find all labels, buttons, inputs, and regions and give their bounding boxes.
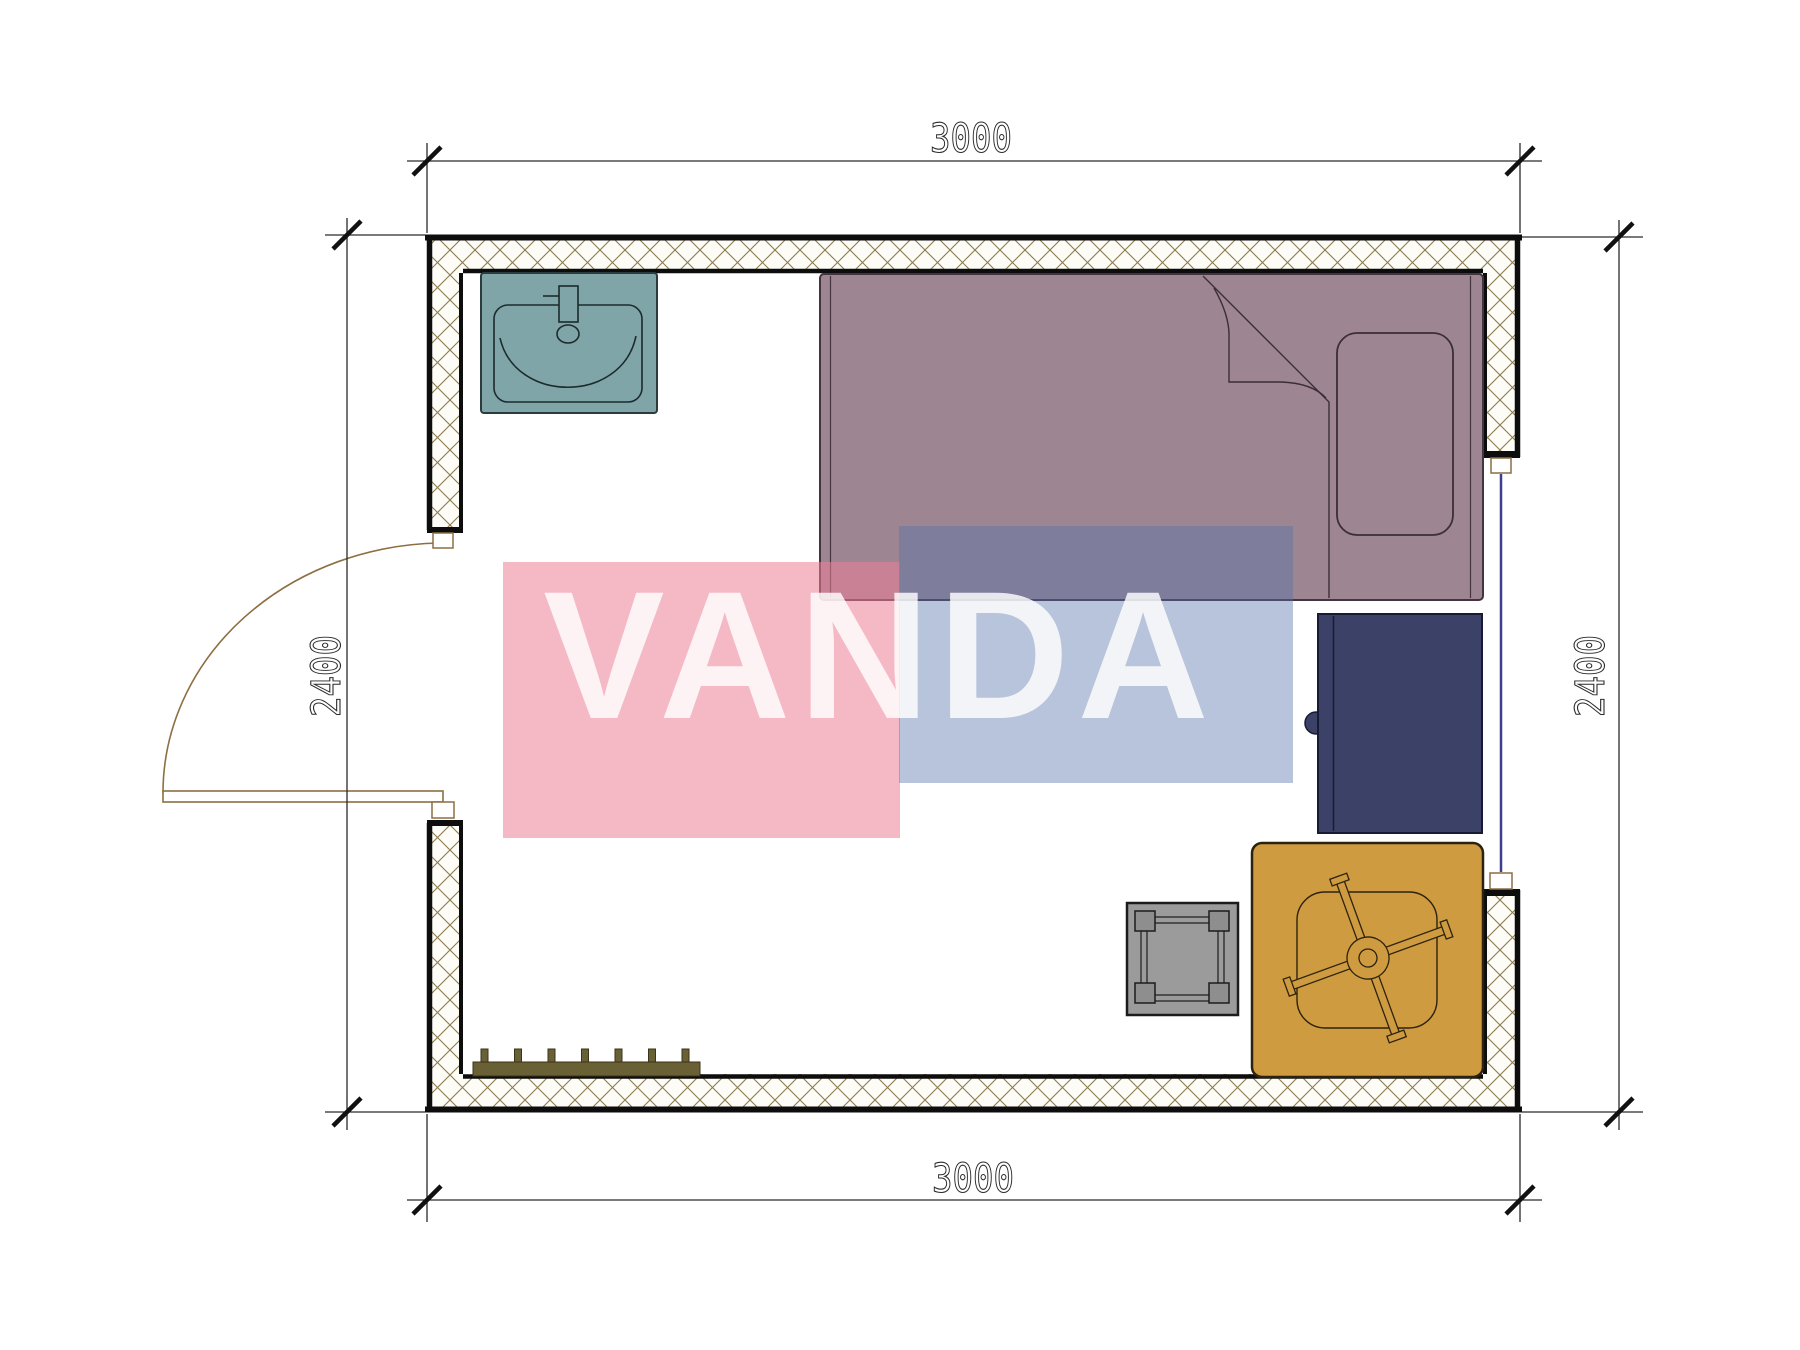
bedside-cabinet [1305,614,1482,833]
wall-top [427,235,1520,273]
window-jamb-bottom [1490,873,1512,889]
wall-cap [427,527,463,533]
sink-drain [557,325,579,343]
dim-bottom-label: 3000 [932,1156,1014,1202]
dim-right-label: 2400 [1568,635,1614,717]
wall-cap [427,820,463,826]
wall-right-upper [1483,273,1520,451]
wall-bottom [427,1074,1520,1112]
wall-cap [1483,451,1520,458]
radiator-body [473,1062,700,1076]
wall-left-lower [427,826,463,1074]
radiator [473,1049,700,1076]
table-with-chair [1252,843,1483,1077]
window-jamb-top [1491,458,1511,473]
wall-left-upper [427,273,463,527]
cabinet-body [1318,614,1482,833]
door-swing-arc [163,543,441,793]
door-jamb-top [433,533,453,548]
stool [1127,903,1238,1015]
watermark-logo-text: VANDA [543,553,1217,757]
sink [481,273,657,413]
window [1490,458,1512,889]
floor-plan-drawing: 3000 3000 2400 2400 VANDA [0,0,1800,1350]
dim-left-label: 2400 [304,635,350,717]
wall-right-lower [1483,896,1520,1074]
sink-faucet [559,286,578,322]
door-leaf [163,791,443,802]
door-jamb-bottom [432,802,454,818]
floor-plan-canvas: 3000 3000 2400 2400 VANDA [0,0,1800,1350]
watermark: VANDA [503,526,1293,838]
wall-cap [1483,889,1520,896]
dim-top-label: 3000 [930,116,1012,162]
